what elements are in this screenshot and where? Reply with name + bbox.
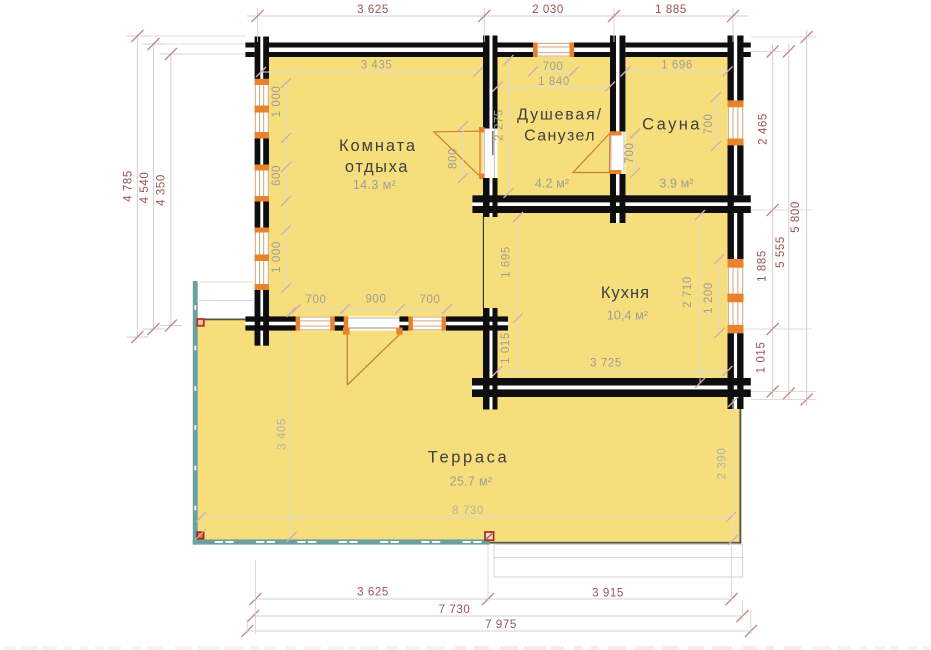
- svg-text:1 000: 1 000: [271, 241, 283, 273]
- svg-text:2 030: 2 030: [532, 4, 564, 16]
- svg-text:7 975: 7 975: [485, 619, 517, 631]
- svg-text:3 435: 3 435: [361, 60, 393, 72]
- svg-text:1 885: 1 885: [757, 250, 769, 282]
- svg-text:2 275: 2 275: [494, 109, 506, 141]
- svg-text:1 840: 1 840: [538, 76, 570, 88]
- svg-text:Терраса: Терраса: [428, 449, 510, 467]
- svg-text:3 725: 3 725: [590, 358, 622, 370]
- svg-text:8 730: 8 730: [452, 505, 484, 517]
- svg-text:1 015: 1 015: [756, 342, 768, 374]
- svg-text:1 200: 1 200: [703, 282, 715, 314]
- svg-text:1 885: 1 885: [655, 4, 687, 16]
- svg-text:Душевая/: Душевая/: [517, 107, 603, 124]
- svg-text:5 555: 5 555: [775, 236, 787, 268]
- svg-text:700: 700: [543, 61, 564, 73]
- svg-text:5 800: 5 800: [790, 201, 802, 233]
- svg-text:3 625: 3 625: [357, 587, 389, 599]
- svg-text:3 405: 3 405: [277, 418, 289, 450]
- svg-text:3 915: 3 915: [592, 588, 624, 600]
- svg-text:3 625: 3 625: [357, 4, 389, 16]
- svg-text:Кухня: Кухня: [601, 284, 650, 302]
- svg-text:700: 700: [703, 114, 715, 135]
- svg-text:1 696: 1 696: [661, 60, 693, 72]
- svg-text:Комната: Комната: [339, 137, 417, 155]
- svg-text:900: 900: [366, 294, 387, 306]
- svg-text:Сауна: Сауна: [642, 116, 702, 134]
- svg-text:1 015: 1 015: [500, 332, 512, 364]
- svg-text:3.9 м²: 3.9 м²: [659, 177, 693, 191]
- svg-text:25.7 м²: 25.7 м²: [450, 475, 493, 489]
- svg-text:10,4 м²: 10,4 м²: [607, 309, 648, 323]
- svg-text:4 350: 4 350: [156, 174, 168, 206]
- svg-text:отдыха: отдыха: [345, 158, 409, 176]
- svg-text:800: 800: [448, 148, 460, 169]
- svg-text:2 710: 2 710: [682, 276, 694, 308]
- svg-text:700: 700: [624, 143, 636, 164]
- svg-text:4 785: 4 785: [123, 170, 135, 202]
- svg-text:1 695: 1 695: [501, 246, 513, 278]
- svg-text:4 540: 4 540: [139, 172, 151, 204]
- svg-text:Санузел: Санузел: [524, 128, 596, 145]
- svg-text:2 390: 2 390: [717, 448, 729, 480]
- svg-text:700: 700: [306, 294, 327, 306]
- svg-text:4.2 м²: 4.2 м²: [535, 177, 569, 191]
- svg-text:1 000: 1 000: [271, 86, 283, 118]
- svg-text:14.3 м²: 14.3 м²: [353, 178, 396, 192]
- svg-text:2 465: 2 465: [758, 113, 770, 145]
- svg-text:600: 600: [271, 165, 283, 186]
- svg-text:7 730: 7 730: [439, 604, 471, 616]
- svg-text:700: 700: [420, 294, 441, 306]
